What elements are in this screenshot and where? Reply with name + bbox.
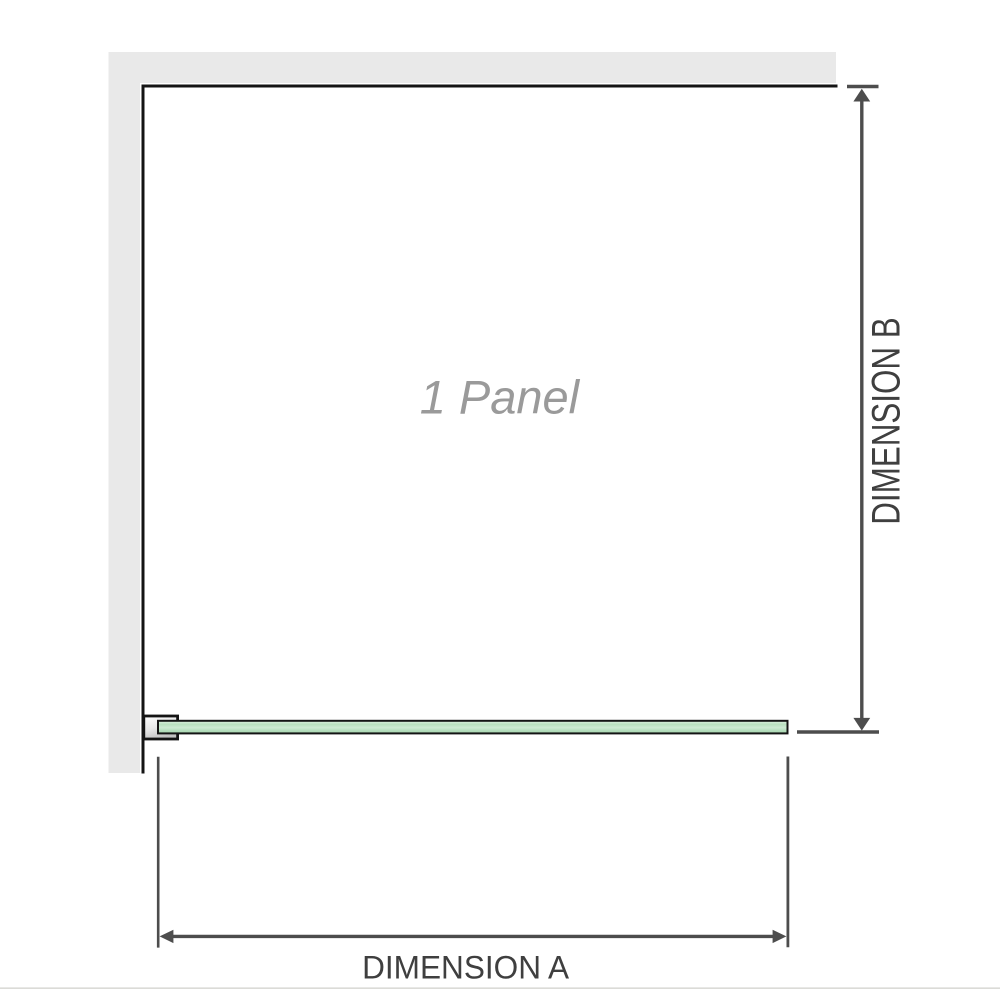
svg-text:DIMENSION A: DIMENSION A bbox=[362, 949, 570, 985]
svg-text:1 Panel: 1 Panel bbox=[420, 371, 581, 424]
svg-text:DIMENSION B: DIMENSION B bbox=[865, 317, 909, 525]
